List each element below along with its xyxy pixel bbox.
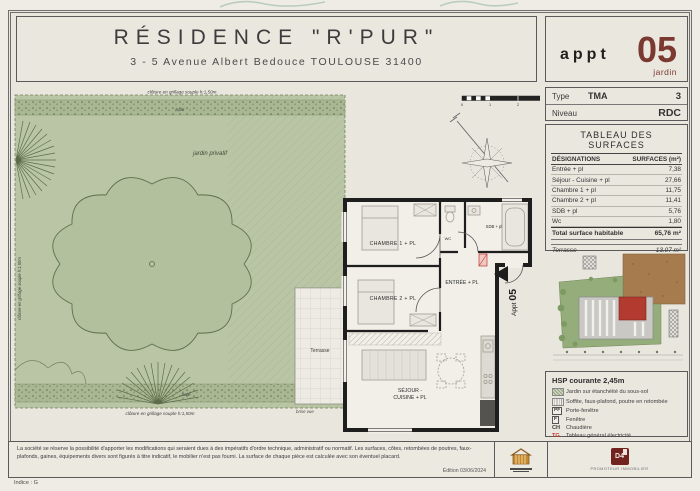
table-row: Chambre 1 + pl11,75 bbox=[551, 186, 682, 196]
total-row: Total surface habitable65,76 m² bbox=[551, 227, 682, 240]
f-key: F bbox=[552, 416, 559, 424]
hedge-label-bottom: haie bbox=[181, 392, 190, 398]
scale-tick: 0 bbox=[461, 103, 463, 107]
legend-label: Tableau général électricité bbox=[566, 433, 631, 439]
fence-label-left: clôture en grillage souple h:1,50m bbox=[17, 257, 22, 320]
legend-item: F Fenêtre bbox=[552, 416, 681, 424]
sejour-label-line2: CUISINE + PL bbox=[393, 395, 426, 401]
map-hatched-block-top bbox=[583, 256, 596, 269]
map-hatched-block-right bbox=[669, 310, 678, 337]
legend-item: TG Tableau général électricité bbox=[552, 433, 681, 439]
wc-label: WC bbox=[445, 236, 452, 241]
level-value: RDC bbox=[658, 107, 681, 119]
terrace: Terrasse brise vue bbox=[295, 288, 345, 414]
handwriting-scribble bbox=[210, 0, 530, 10]
builder-logo bbox=[495, 442, 548, 477]
col-surfaces: SURFACES (m²) bbox=[632, 156, 681, 163]
map-field-brown bbox=[623, 254, 685, 304]
d4-logo-icon: D4 bbox=[611, 448, 629, 465]
row-label: Chambre 2 + pl bbox=[552, 197, 596, 204]
logo-caption-bar bbox=[510, 468, 532, 470]
tg-electrical-marker bbox=[479, 254, 487, 266]
sejour-label-line1: SÉJOUR - bbox=[398, 387, 422, 394]
level-row: Niveau RDC bbox=[546, 105, 687, 121]
legend-item: Soffite, faux-plafond, poutre en retombé… bbox=[552, 398, 681, 406]
kitchen-counter bbox=[480, 336, 496, 426]
appt-garden-tag: jardin bbox=[653, 67, 677, 77]
row-label: Wc bbox=[552, 218, 561, 225]
sdb-label: SDB + pl bbox=[486, 224, 503, 229]
plan-sheet: RÉSIDENCE "R'PUR" 3 - 5 Avenue Albert Be… bbox=[0, 0, 700, 491]
row-value: 11,75 bbox=[665, 187, 681, 194]
legend-box: HSP courante 2,45m Jardin sur étanchéité… bbox=[545, 371, 688, 437]
table-row: Entrée + pl7,38 bbox=[551, 165, 682, 175]
surface-table-header: DÉSIGNATIONS SURFACES (m²) bbox=[551, 153, 682, 165]
ch-key: CH bbox=[552, 425, 560, 431]
surface-table: TABLEAU DES SURFACES DÉSIGNATIONS SURFAC… bbox=[545, 124, 688, 251]
legend-item: PF Porte-fenêtre bbox=[552, 407, 681, 415]
cloud-bush bbox=[53, 178, 251, 351]
legend-item: Jardin sur étanchéité du sous-sol bbox=[552, 388, 681, 396]
fence-label-bottom: clôture en grillage souple h:1,50m bbox=[126, 411, 195, 416]
type-label: Type bbox=[552, 92, 588, 101]
level-label: Niveau bbox=[552, 109, 588, 118]
fence-label-top: clôture en grillage souple h:1,50m bbox=[148, 90, 217, 95]
appt-number-block: 05 jardin bbox=[637, 35, 677, 77]
total-value: 65,76 m² bbox=[655, 230, 681, 237]
row-label: SDB + pl bbox=[552, 208, 577, 215]
closet-chambre2 bbox=[410, 314, 436, 326]
row-value: 1,80 bbox=[669, 218, 681, 225]
chambre1-label: CHAMBRE 1 + PL bbox=[370, 241, 417, 247]
legend-item: CH Chaudière bbox=[552, 425, 681, 431]
pf-key: PF bbox=[552, 407, 562, 415]
bathtub bbox=[502, 204, 528, 250]
garden-label: jardin privatif bbox=[192, 151, 228, 157]
apartment-unit: CHAMBRE 1 + PL CHAMBRE 2 + PL ENTRÉE + P… bbox=[342, 197, 531, 434]
brise-vue-label: brise vue bbox=[296, 409, 314, 414]
edition-date: Édition 03/06/2024 bbox=[443, 468, 486, 474]
soffite-swatch-icon bbox=[552, 398, 566, 406]
type-count: 3 bbox=[676, 91, 681, 102]
row-value: 7,38 bbox=[669, 166, 681, 173]
scale-tick: 2 bbox=[517, 103, 519, 107]
scale-bar: 0 1 2 3 bbox=[461, 96, 540, 107]
entree-label: ENTRÉE + PL bbox=[445, 279, 478, 286]
total-label: Total surface habitable bbox=[552, 230, 623, 237]
promoter-logo: D4 PROMOTEUR IMMOBILIER bbox=[548, 442, 691, 477]
table-row: SDB + pl5,76 bbox=[551, 207, 682, 217]
floor-plan: clôture en grillage souple h:1,50m haie … bbox=[10, 88, 540, 438]
compass-rose-icon bbox=[450, 113, 512, 188]
type-level-box: Type TMA 3 Niveau RDC bbox=[545, 87, 688, 121]
apartment-id-block: appt 05 jardin bbox=[545, 16, 688, 82]
building-icon bbox=[509, 447, 533, 467]
footer-disclaimer-cell: La société se réserve la possibilité d'a… bbox=[9, 442, 495, 477]
row-label: Entrée + pl bbox=[552, 166, 583, 173]
map-highlighted-apartment bbox=[619, 297, 646, 320]
row-value: 5,76 bbox=[669, 208, 681, 215]
legend-label: Soffite, faux-plafond, poutre en retombé… bbox=[566, 399, 668, 405]
logo-caption-bar bbox=[513, 471, 529, 473]
row-value: 11,41 bbox=[665, 197, 681, 204]
promoter-caption: PROMOTEUR IMMOBILIER bbox=[590, 467, 648, 471]
closet-chambre1 bbox=[414, 204, 436, 216]
chambre2-label: CHAMBRE 2 + PL bbox=[370, 296, 417, 302]
legend-label: Jardin sur étanchéité du sous-sol bbox=[566, 389, 648, 395]
row-label: Chambre 1 + pl bbox=[552, 187, 596, 194]
type-value: TMA bbox=[588, 91, 608, 101]
surface-table-title: TABLEAU DES SURFACES bbox=[551, 130, 682, 150]
appt-number: 05 bbox=[637, 35, 677, 66]
site-location-map bbox=[545, 252, 688, 369]
legend-label: Fenêtre bbox=[566, 417, 585, 423]
ceiling-height-note: HSP courante 2,45m bbox=[552, 376, 681, 385]
legend-label: Porte-fenêtre bbox=[566, 408, 599, 414]
hedge-label-top: haie bbox=[175, 107, 185, 114]
footer: La société se réserve la possibilité d'a… bbox=[8, 441, 692, 478]
soffite-beam bbox=[349, 333, 441, 345]
row-value: 27,66 bbox=[665, 177, 681, 184]
jardin-swatch-icon bbox=[552, 388, 566, 396]
page-title: RÉSIDENCE "R'PUR" bbox=[17, 26, 536, 50]
legend-label: Chaudière bbox=[566, 425, 592, 431]
tg-key: TG bbox=[552, 433, 560, 439]
table-row: Séjour - Cuisine + pl27,66 bbox=[551, 175, 682, 185]
entrance-appt-marker: Appt05 bbox=[507, 289, 519, 316]
type-row: Type TMA 3 bbox=[546, 88, 687, 105]
scale-tick: 1 bbox=[489, 103, 491, 107]
table-row: Chambre 2 + pl11,41 bbox=[551, 196, 682, 206]
terrace-label: Terrasse bbox=[310, 348, 329, 354]
header-title-block: RÉSIDENCE "R'PUR" 3 - 5 Avenue Albert Be… bbox=[16, 16, 537, 82]
col-designations: DÉSIGNATIONS bbox=[552, 156, 600, 163]
washbasin bbox=[468, 206, 480, 215]
table-row: Wc1,80 bbox=[551, 217, 682, 227]
appt-label: appt bbox=[560, 46, 610, 64]
address-line: 3 - 5 Avenue Albert Bedouce TOULOUSE 314… bbox=[17, 56, 536, 68]
row-label: Séjour - Cuisine + pl bbox=[552, 177, 610, 184]
disclaimer-text: La société se réserve la possibilité d'a… bbox=[17, 445, 479, 461]
kitchen-island bbox=[362, 350, 426, 380]
revision-index: Indice : G bbox=[14, 480, 38, 486]
